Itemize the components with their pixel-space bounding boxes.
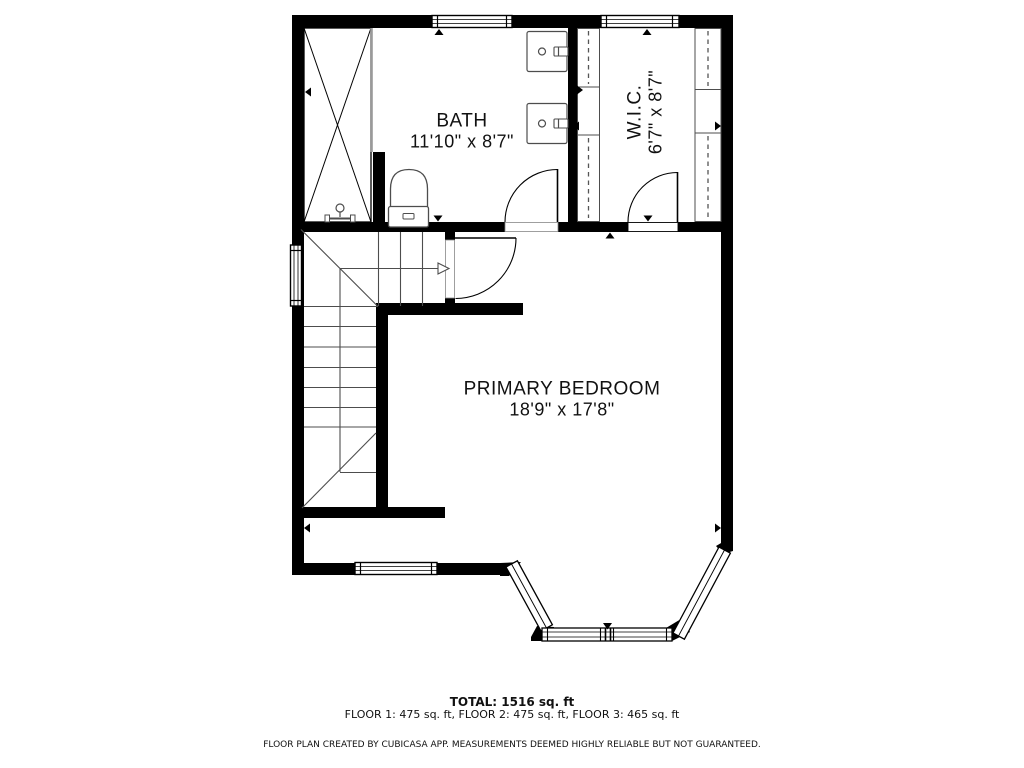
marker-up-icon [435, 29, 444, 35]
wall-interior-b [558, 222, 628, 232]
room-name: BATH [410, 111, 514, 132]
stair-direction-arrow [340, 263, 449, 274]
bay-window-bottom [542, 628, 672, 641]
marker-left-icon [305, 88, 311, 97]
vanity-sinks [527, 32, 568, 144]
walls [292, 15, 733, 641]
room-label-bath: BATH 11'10" x 8'7" [410, 111, 514, 152]
marker-right-icon [715, 524, 721, 533]
total-area-text: TOTAL: 1516 sq. ft [0, 695, 1024, 709]
sink-1 [527, 32, 568, 72]
door-bedroom [446, 238, 517, 299]
wall-interior-c [678, 222, 733, 232]
room-name: PRIMARY BEDROOM [464, 379, 661, 400]
room-name: W.I.C. [625, 70, 646, 154]
door-bath [505, 169, 558, 232]
wall-stair-bottom [292, 507, 445, 518]
bay-window-left [506, 561, 552, 631]
window-bottom-left [355, 563, 437, 575]
wall-shower-stub [373, 152, 385, 222]
wall-right [721, 15, 733, 545]
room-dimensions: 6'7" x 8'7" [646, 70, 666, 154]
marker-down-icon [434, 216, 443, 222]
marker-down-icon [644, 216, 653, 222]
sink-2 [527, 104, 568, 144]
window-wic-top [601, 16, 679, 28]
marker-left-icon [304, 524, 310, 533]
disclaimer-text: FLOOR PLAN CREATED BY CUBICASA APP. MEAS… [0, 740, 1024, 750]
stair-winder-bottom-diagonal [302, 433, 376, 508]
wall-stair-right [376, 303, 388, 518]
toilet-fixture [389, 170, 429, 228]
room-dimensions: 11'10" x 8'7" [410, 132, 514, 152]
shower-fixture [304, 28, 372, 222]
room-dimensions: 18'9" x 17'8" [464, 400, 661, 420]
wall-stub-bedroom [376, 303, 523, 315]
door-wic [628, 172, 678, 232]
floor-breakdown-text: FLOOR 1: 475 sq. ft, FLOOR 2: 475 sq. ft… [0, 708, 1024, 721]
bay-window-right [673, 547, 730, 639]
window-bath-top [432, 16, 512, 28]
room-label-primary-bedroom: PRIMARY BEDROOM 18'9" x 17'8" [464, 379, 661, 420]
marker-up-icon [606, 233, 615, 239]
room-label-wic: W.I.C. 6'7" x 8'7" [625, 70, 666, 154]
marker-up-icon [643, 29, 652, 35]
wall-stair-door-top [445, 232, 455, 240]
closet-rail-left [578, 29, 600, 222]
staircase [301, 230, 449, 509]
doors [446, 169, 679, 299]
shower-valve-icon [325, 204, 355, 222]
window-left-stair [291, 245, 302, 306]
floor-plan-page: BATH 11'10" x 8'7" W.I.C. 6'7" x 8'7" PR… [0, 0, 1024, 768]
